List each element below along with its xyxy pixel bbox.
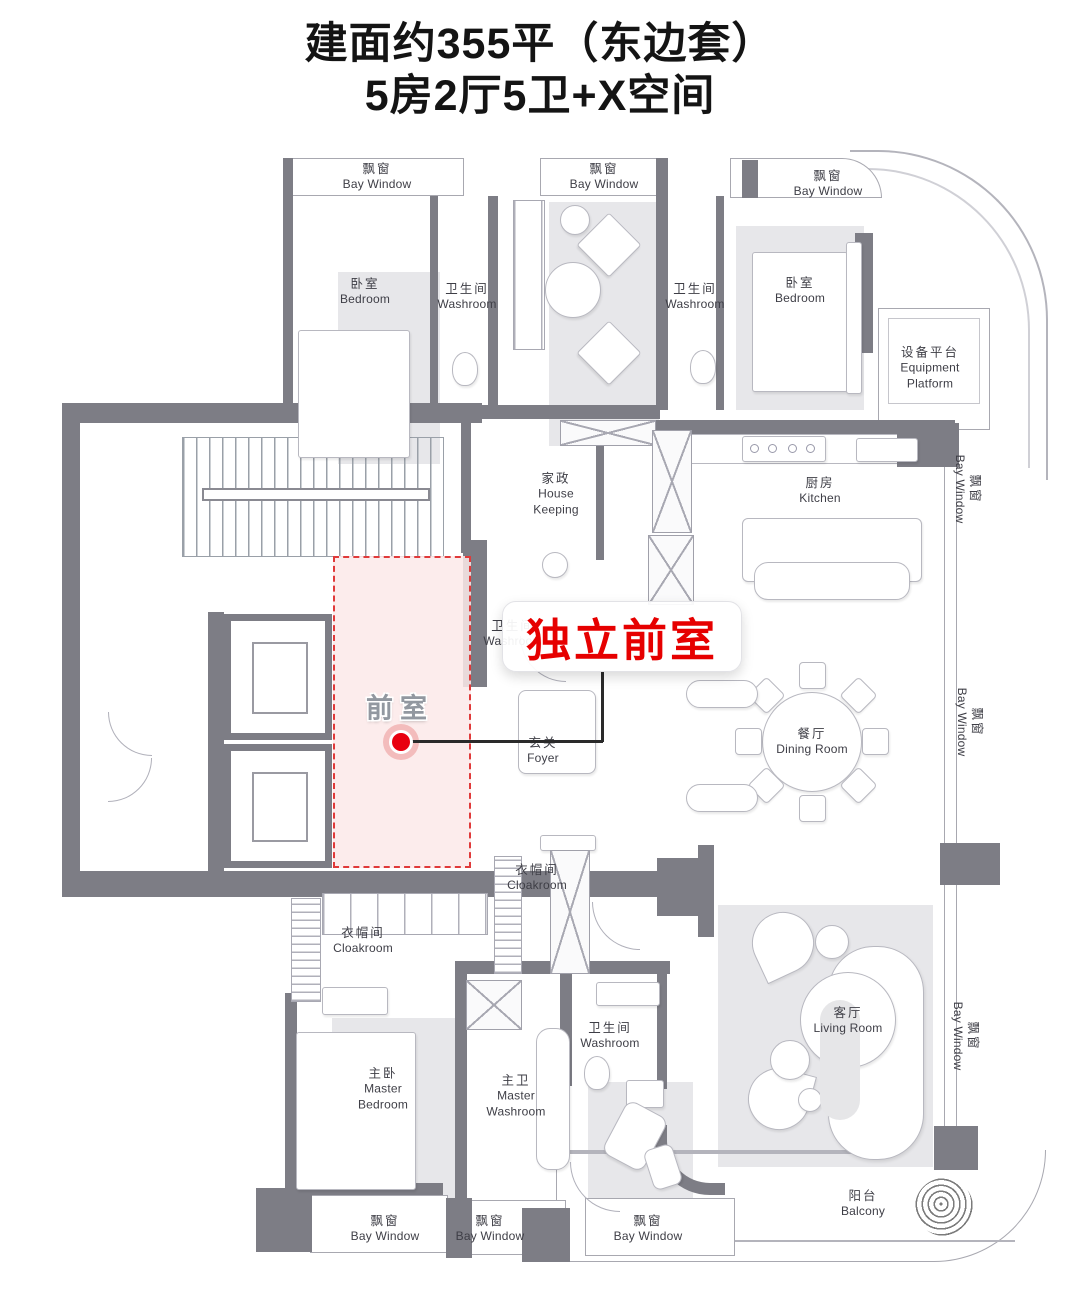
stove-burner — [806, 444, 815, 453]
stove-burner — [750, 444, 759, 453]
round-table — [545, 262, 601, 318]
wall — [940, 843, 1000, 885]
toilet — [584, 1056, 610, 1090]
title-line-2: 5房2厅5卫+X空间 — [0, 70, 1080, 122]
shower — [466, 980, 522, 1030]
wall-pier — [934, 1126, 978, 1170]
marker-dot — [389, 730, 413, 754]
headboard — [846, 242, 862, 394]
room-label-bedroom-left: 卧室Bedroom — [340, 276, 390, 308]
stair-rail — [202, 488, 430, 501]
wall-block-sideboard — [657, 858, 707, 916]
room-label-washroom-top-2: 卫生间Washroom — [665, 281, 724, 313]
callout-text: 独立前室 — [526, 604, 718, 669]
title-line-1: 建面约355平（东边套） — [0, 18, 1080, 70]
plant — [915, 1178, 973, 1236]
elevator-car — [252, 772, 308, 842]
room-label-master-washroom: 主卫Master Washroom — [473, 1072, 559, 1119]
wall — [596, 430, 604, 560]
stove-burner — [768, 444, 777, 453]
wall — [461, 417, 471, 553]
elevator-car — [252, 642, 308, 714]
door-arc — [592, 902, 640, 950]
bench — [560, 420, 656, 446]
room-label-balcony: 阳台Balcony — [841, 1188, 885, 1220]
room-label-bay-window-right-mid: 飘窗Bay Window — [953, 688, 985, 757]
side-table — [815, 925, 849, 959]
column-cabinet — [648, 535, 694, 605]
side-table — [798, 1088, 822, 1112]
vanity-sink — [596, 982, 660, 1006]
room-label-bay-window-top-left: 飘窗Bay Window — [343, 161, 412, 193]
bed — [298, 330, 410, 458]
cabinet — [513, 200, 545, 350]
wall — [470, 405, 660, 419]
wall — [208, 612, 224, 872]
room-label-equipment-platform: 设备平台Equipment Platform — [887, 344, 973, 391]
room-label-washroom-top-1: 卫生间Washroom — [437, 281, 496, 313]
room-label-bay-window-bottom-2: 飘窗Bay Window — [456, 1213, 525, 1245]
page-title: 建面约355平（东边套） 5房2厅5卫+X空间 — [0, 18, 1080, 123]
wall — [742, 160, 758, 198]
toilet — [452, 352, 478, 386]
room-label-bay-window-right-top: 飘窗Bay Window — [951, 455, 983, 524]
door-arc — [108, 758, 152, 802]
bed — [752, 252, 848, 392]
callout-leader-line — [407, 740, 603, 743]
front-room-label: 前室 — [366, 687, 434, 726]
callout-independent-front-room: 独立前室 — [502, 601, 742, 672]
foyer-console — [540, 835, 596, 851]
wall — [283, 158, 293, 410]
room-label-cloakroom-long: 衣帽间Cloakroom — [333, 925, 393, 957]
washer — [542, 552, 568, 578]
bench-seat — [686, 680, 758, 708]
side-table — [560, 205, 590, 235]
callout-leader-line — [601, 671, 604, 742]
hanging-rack — [291, 898, 321, 1002]
room-label-cloakroom-small: 衣帽间Cloakroom — [507, 862, 567, 894]
stove-burner — [788, 444, 797, 453]
door-arc — [108, 712, 152, 756]
room-label-washroom-lower: 卫生间Washroom — [580, 1020, 639, 1052]
room-label-bay-window-right-bottom: 飘窗Bay Window — [949, 1002, 981, 1071]
wall — [62, 403, 80, 897]
dining-chair — [735, 728, 762, 755]
wall-pier — [522, 1208, 570, 1262]
shoe-rack — [322, 987, 388, 1015]
room-label-bay-window-top-mid: 飘窗Bay Window — [570, 161, 639, 193]
room-label-bay-window-top-right: 飘窗Bay Window — [794, 168, 863, 200]
kitchen-island-counter — [754, 562, 910, 600]
toilet — [690, 350, 716, 384]
room-label-master-bedroom: 主卧Master Bedroom — [340, 1065, 426, 1112]
bench-seat — [686, 784, 758, 812]
dining-chair — [799, 795, 826, 822]
wall — [62, 403, 482, 423]
room-label-kitchen: 厨房Kitchen — [799, 475, 840, 507]
fridge-cabinet — [652, 430, 692, 533]
dining-chair — [862, 728, 889, 755]
floor-plan: 前室 独立前室 飘窗Bay Window 卧室Bedroom 卫生间Washro… — [0, 0, 1080, 1312]
kitchen-sink — [856, 438, 918, 462]
wall-pier — [256, 1188, 312, 1252]
side-table — [770, 1040, 810, 1080]
room-label-bedroom-right: 卧室Bedroom — [775, 275, 825, 307]
room-label-living-room: 客厅Living Room — [814, 1005, 883, 1037]
room-label-bay-window-bottom-1: 飘窗Bay Window — [351, 1213, 420, 1245]
dining-chair — [799, 662, 826, 689]
room-label-house-keeping: 家政House Keeping — [525, 470, 587, 517]
room-label-bay-window-bottom-3: 飘窗Bay Window — [614, 1213, 683, 1245]
room-label-dining-room: 餐厅Dining Room — [776, 726, 848, 758]
